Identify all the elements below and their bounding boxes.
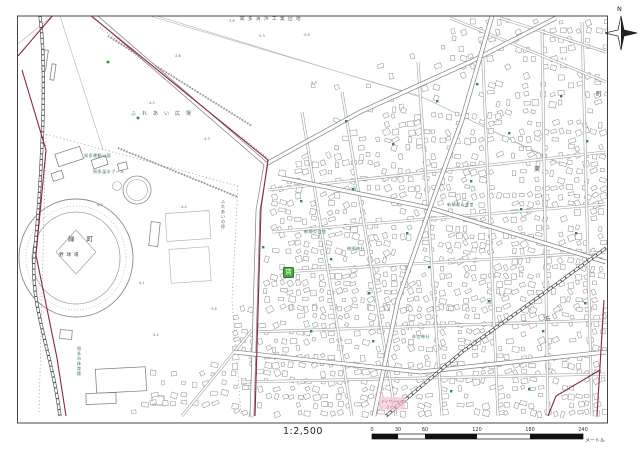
map-label: 丘 bbox=[545, 316, 551, 323]
map-canvas[interactable]: ·4.5·4.3·5.3·5.9·5.3·2.8·4.4·4.1·5.6·2.1… bbox=[0, 0, 640, 453]
map-label: 知多温水プール bbox=[93, 168, 125, 174]
map-label: 緑町 bbox=[68, 234, 105, 243]
svg-text:·5.6: ·5.6 bbox=[498, 293, 505, 297]
gymnasium-building bbox=[95, 367, 146, 394]
boundary-lines bbox=[18, 14, 604, 416]
svg-text:·3.4: ·3.4 bbox=[210, 307, 217, 311]
svg-text:·2.1: ·2.1 bbox=[406, 327, 413, 331]
svg-text:30: 30 bbox=[395, 427, 401, 433]
svg-text:·4.5: ·4.5 bbox=[148, 101, 155, 105]
svg-text:·5.3: ·5.3 bbox=[258, 34, 265, 38]
map-label: 知多運動公園 bbox=[84, 152, 111, 158]
pool-outline bbox=[123, 176, 151, 204]
north-label: N bbox=[617, 5, 622, 13]
svg-text:240: 240 bbox=[578, 427, 588, 433]
map-label: 牟山神社 bbox=[412, 333, 430, 339]
svg-text:0: 0 bbox=[370, 427, 373, 433]
svg-text:·4.4: ·4.4 bbox=[152, 333, 159, 337]
scale-ratio-text: 1:2,500 bbox=[283, 426, 323, 437]
map-page: ·4.5·4.3·5.3·5.9·5.3·2.8·4.4·4.1·5.6·2.1… bbox=[0, 0, 640, 453]
svg-text:·5.1: ·5.1 bbox=[560, 57, 567, 61]
svg-text:·4.4: ·4.4 bbox=[180, 205, 187, 209]
map-label: 知多市体育館 bbox=[77, 345, 82, 376]
svg-text:メートル: メートル bbox=[585, 438, 605, 444]
map-label: 新知公会堂 bbox=[304, 228, 327, 234]
svg-text:60: 60 bbox=[422, 427, 428, 433]
svg-text:·4.3: ·4.3 bbox=[203, 137, 210, 141]
map-label: 東 bbox=[534, 165, 540, 173]
map-label: 神明神社 bbox=[347, 245, 365, 251]
scale-bar: 03060120180240メートル bbox=[370, 427, 605, 444]
map-label: デイサービス bbox=[381, 399, 404, 404]
svg-text:120: 120 bbox=[472, 427, 482, 433]
svg-text:·3.6: ·3.6 bbox=[228, 19, 235, 23]
map-label: ふれあい広場 bbox=[131, 110, 197, 117]
map-label: 町 bbox=[596, 91, 602, 98]
svg-text:·2.8: ·2.8 bbox=[174, 54, 181, 58]
map-label: さくら bbox=[386, 405, 398, 410]
svg-text:·4.2: ·4.2 bbox=[96, 203, 103, 207]
map-label: 新知東公会堂 bbox=[447, 201, 474, 207]
svg-text:·4.1: ·4.1 bbox=[138, 281, 145, 285]
svg-text:·5.3: ·5.3 bbox=[310, 81, 317, 85]
compass-icon bbox=[605, 16, 637, 50]
rental-map-marker[interactable]: 賃 bbox=[283, 267, 294, 278]
svg-text:180: 180 bbox=[525, 427, 535, 433]
map-label: 野球場 bbox=[59, 251, 82, 258]
svg-text:·5.9: ·5.9 bbox=[303, 33, 310, 37]
map-label: ふれあいの径 bbox=[221, 199, 226, 229]
station-platform bbox=[50, 64, 56, 80]
